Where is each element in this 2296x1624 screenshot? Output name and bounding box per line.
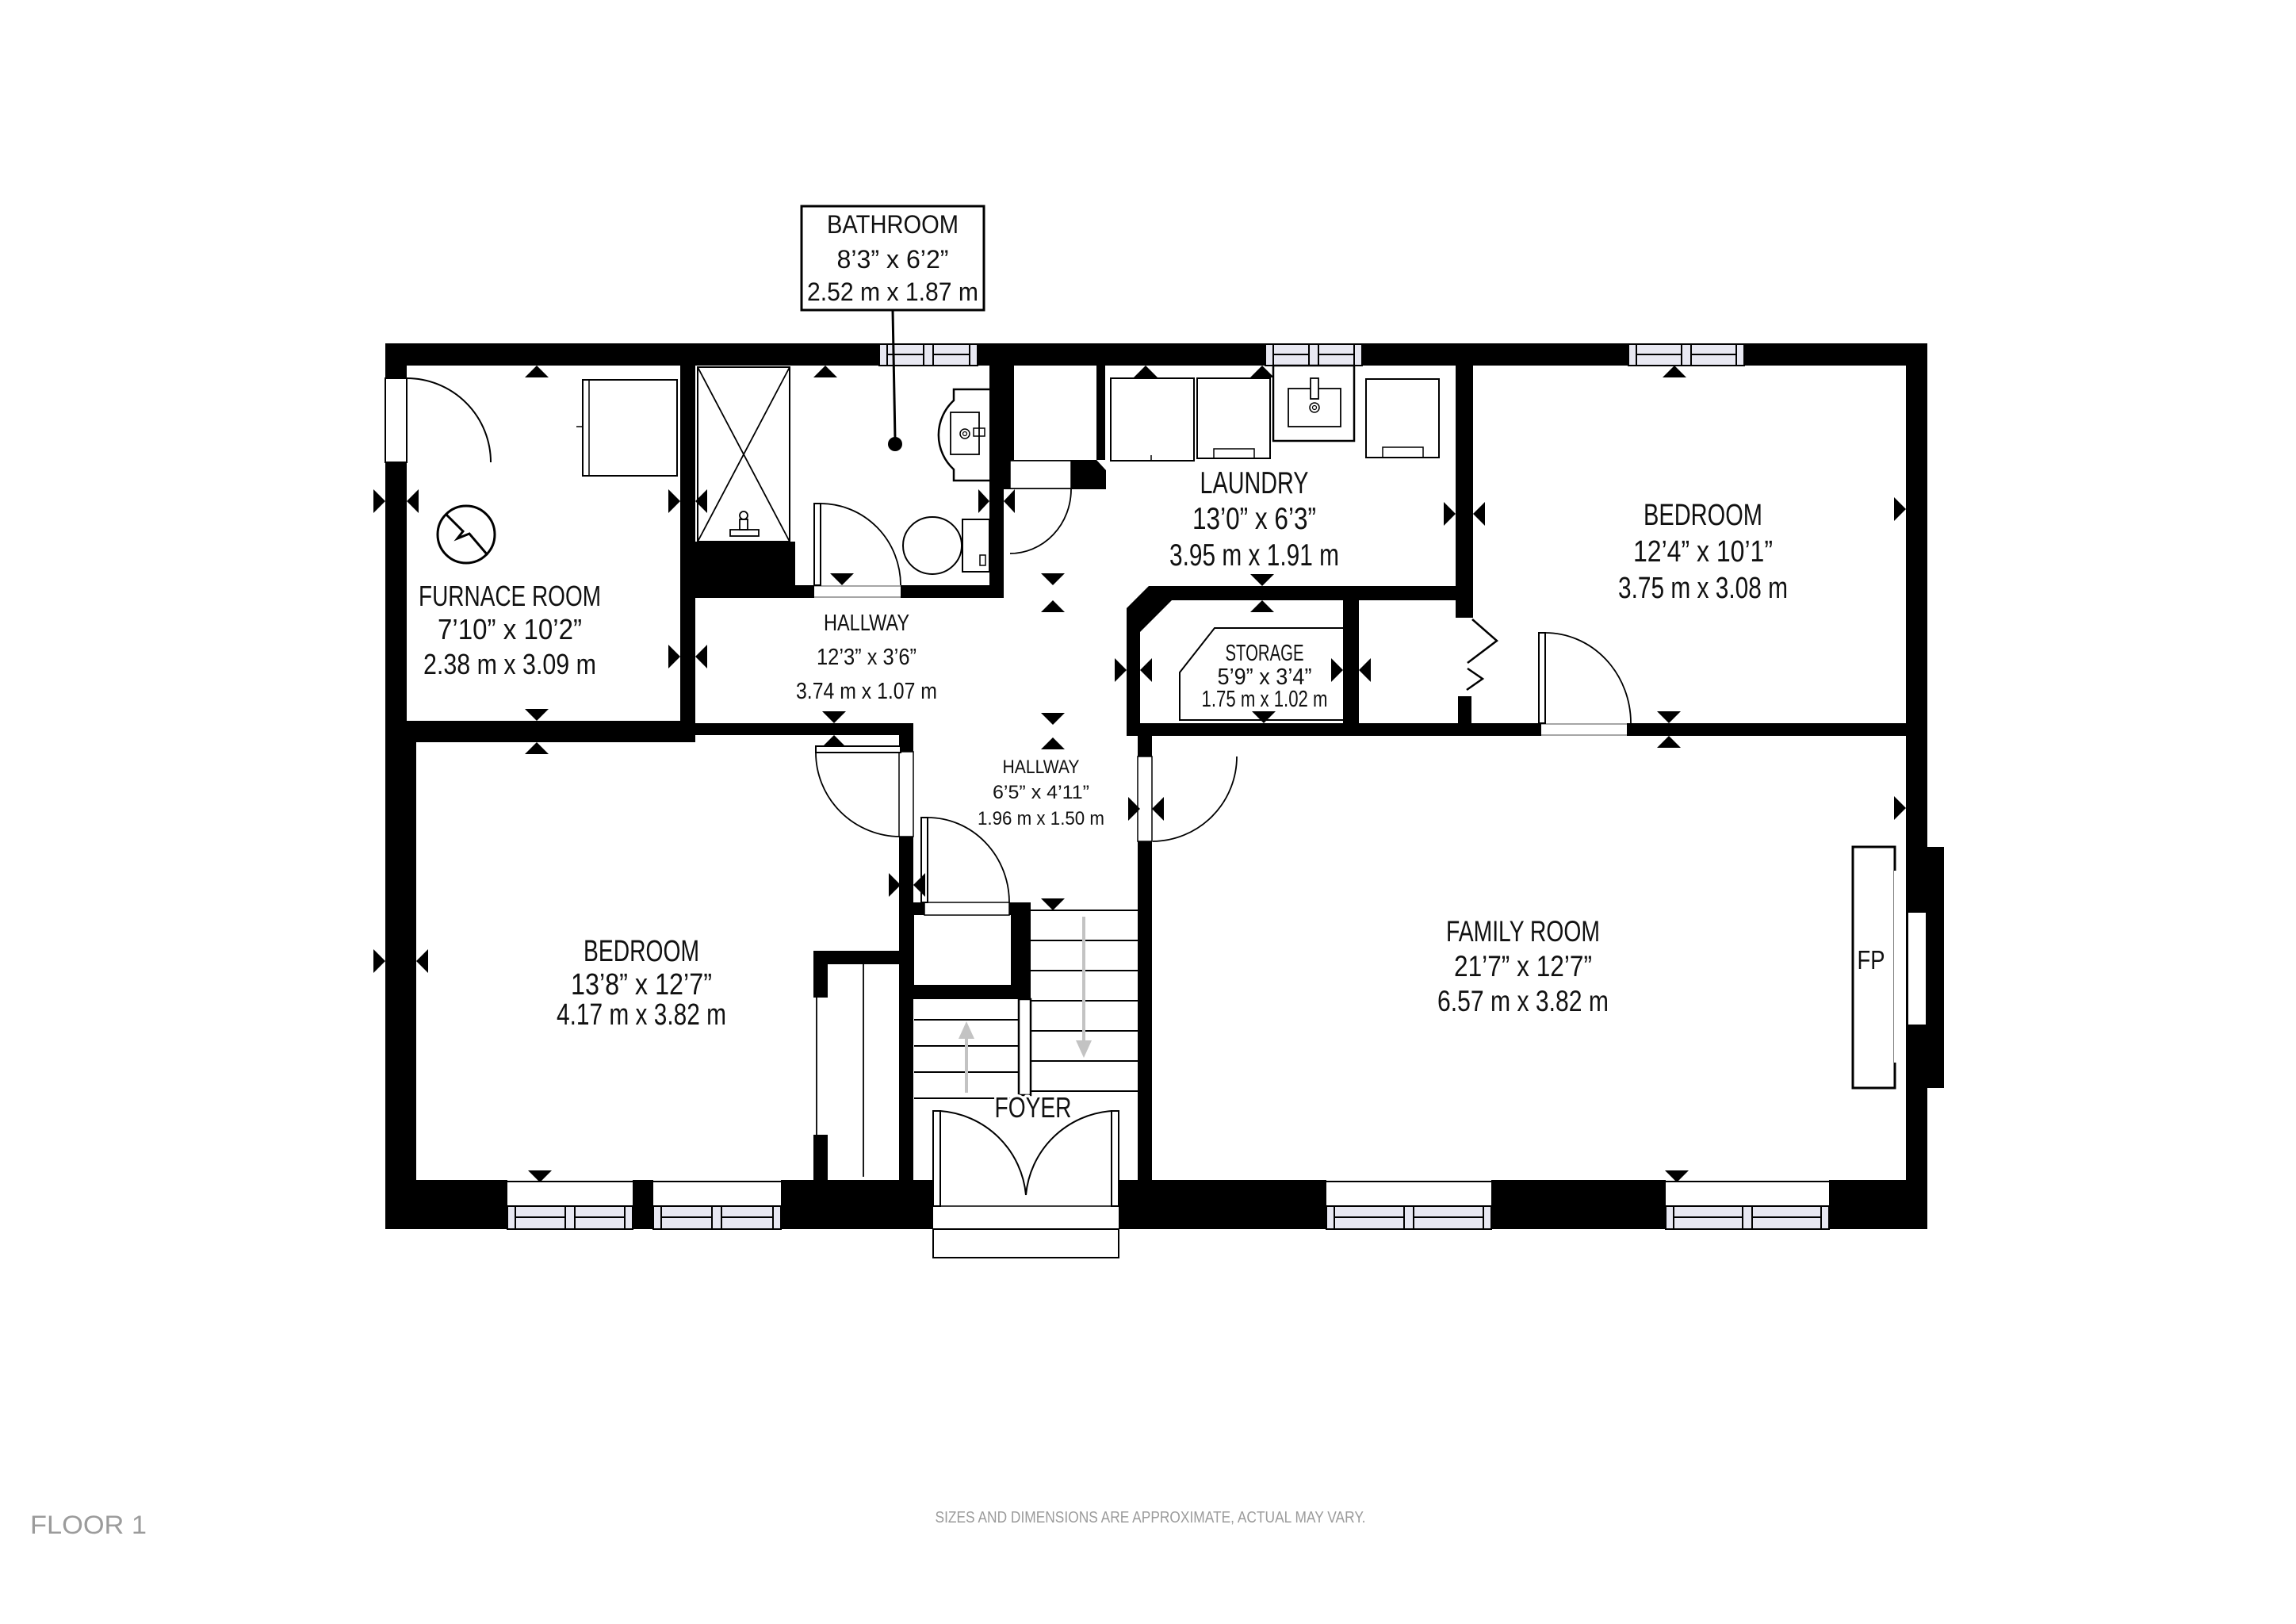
svg-text:BEDROOM: BEDROOM: [584, 935, 699, 968]
svg-text:FURNACE ROOM: FURNACE ROOM: [419, 580, 601, 612]
svg-text:FLOOR 1: FLOOR 1: [30, 1511, 147, 1539]
svg-text:6.57 m x 3.82 m: 6.57 m x 3.82 m: [1437, 985, 1609, 1017]
svg-text:12’3” x 3’6”: 12’3” x 3’6”: [817, 645, 916, 670]
svg-text:HALLWAY: HALLWAY: [1003, 756, 1080, 778]
svg-text:BEDROOM: BEDROOM: [1644, 499, 1762, 532]
svg-text:FOYER: FOYER: [995, 1091, 1072, 1124]
svg-text:STORAGE: STORAGE: [1226, 641, 1304, 666]
svg-text:LAUNDRY: LAUNDRY: [1200, 466, 1309, 500]
svg-text:HALLWAY: HALLWAY: [824, 611, 909, 636]
svg-text:21’7” x 12’7”: 21’7” x 12’7”: [1454, 950, 1592, 982]
svg-text:6’5” x 4’11”: 6’5” x 4’11”: [993, 782, 1089, 803]
svg-text:3.75 m x 3.08 m: 3.75 m x 3.08 m: [1618, 572, 1788, 605]
svg-text:BATHROOM: BATHROOM: [827, 210, 959, 239]
svg-text:2.52 m x 1.87 m: 2.52 m x 1.87 m: [807, 278, 978, 306]
svg-text:12’4” x 10’1”: 12’4” x 10’1”: [1633, 535, 1773, 569]
svg-text:13’0” x 6’3”: 13’0” x 6’3”: [1192, 502, 1316, 536]
svg-text:3.95 m x 1.91 m: 3.95 m x 1.91 m: [1169, 538, 1339, 573]
svg-text:4.17 m x 3.82 m: 4.17 m x 3.82 m: [557, 998, 726, 1032]
svg-text:8’3” x 6’2”: 8’3” x 6’2”: [837, 245, 949, 274]
svg-text:3.74 m x 1.07 m: 3.74 m x 1.07 m: [796, 679, 937, 704]
svg-text:FP: FP: [1858, 945, 1885, 975]
svg-text:7’10” x 10’2”: 7’10” x 10’2”: [438, 613, 582, 645]
svg-text:2.38 m x 3.09 m: 2.38 m x 3.09 m: [423, 648, 596, 680]
svg-text:FAMILY ROOM: FAMILY ROOM: [1446, 915, 1600, 948]
svg-text:1.75 m x 1.02 m: 1.75 m x 1.02 m: [1202, 687, 1328, 712]
svg-text:SIZES AND DIMENSIONS ARE APPRO: SIZES AND DIMENSIONS ARE APPROXIMATE, AC…: [936, 1508, 1366, 1526]
svg-text:1.96 m x 1.50 m: 1.96 m x 1.50 m: [978, 808, 1104, 829]
svg-text:13’8” x 12’7”: 13’8” x 12’7”: [571, 968, 712, 1002]
